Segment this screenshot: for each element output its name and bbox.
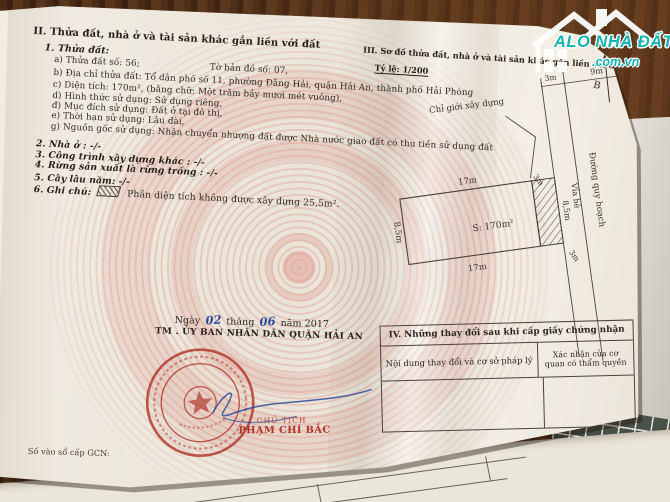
no-build-hatch-area: [532, 178, 564, 247]
alo-nha-dat-watermark: ALO NHÀ ĐẤT .com.vn: [528, 0, 670, 84]
year-label: năm 2017: [280, 318, 329, 330]
section-iv-body: [382, 375, 635, 431]
certificate-photo: II. Thửa đất, nhà ở và tài sản khác gắn …: [0, 0, 670, 502]
sidewalk-dim-label: 8,5m: [561, 200, 573, 222]
brand-name: ALO NHÀ ĐẤT: [554, 33, 670, 52]
plot-outline: [400, 181, 541, 265]
col-change-content: Nội dung thay đổi và cơ sở pháp lý: [381, 343, 538, 381]
body-cell-right: [543, 375, 635, 427]
construction-boundary-label: Chỉ giới xây dựng: [429, 96, 506, 116]
dim-left-label: 8,5m: [391, 221, 404, 244]
dim-top-label: 17m: [457, 175, 477, 188]
map-sheet-number: Tờ bản đồ số: 07,: [210, 63, 289, 77]
note-text: Phần diện tích không được xây dựng 25,5m…: [127, 189, 340, 210]
parcel-number: a) Thửa đất số: 56;: [54, 55, 140, 69]
hatch-bottom-dim: 3m: [567, 248, 581, 263]
dim-bottom-label: 17m: [467, 262, 487, 275]
plot-area-label: S: 170m²: [472, 219, 515, 235]
section-iv-table: IV. Những thay đổi sau khi cấp giấy chứn…: [379, 319, 636, 432]
signer-title: CHỦ TỊCH: [257, 416, 307, 425]
date-prefix: Ngày: [174, 315, 200, 327]
hatch-swatch: [97, 185, 122, 197]
item-note: 6. Ghi chú: Phần diện tích không được xâ…: [33, 182, 339, 210]
brand-domain: .com.vn: [592, 55, 639, 69]
signer-name: PHẠM CHÍ BẮC: [238, 425, 330, 437]
col-authority-confirm: Xác nhận của cơ quan có thẩm quyền: [537, 340, 633, 376]
note-label: 6. Ghi chú:: [33, 184, 91, 198]
road-label: Đường quy hoạch: [586, 152, 607, 229]
month-label: tháng: [226, 316, 254, 328]
handwritten-month: 06: [257, 314, 278, 329]
handwritten-day: 02: [203, 312, 224, 327]
boundary-leader-line: [505, 116, 535, 178]
body-cell-left: [382, 378, 545, 432]
